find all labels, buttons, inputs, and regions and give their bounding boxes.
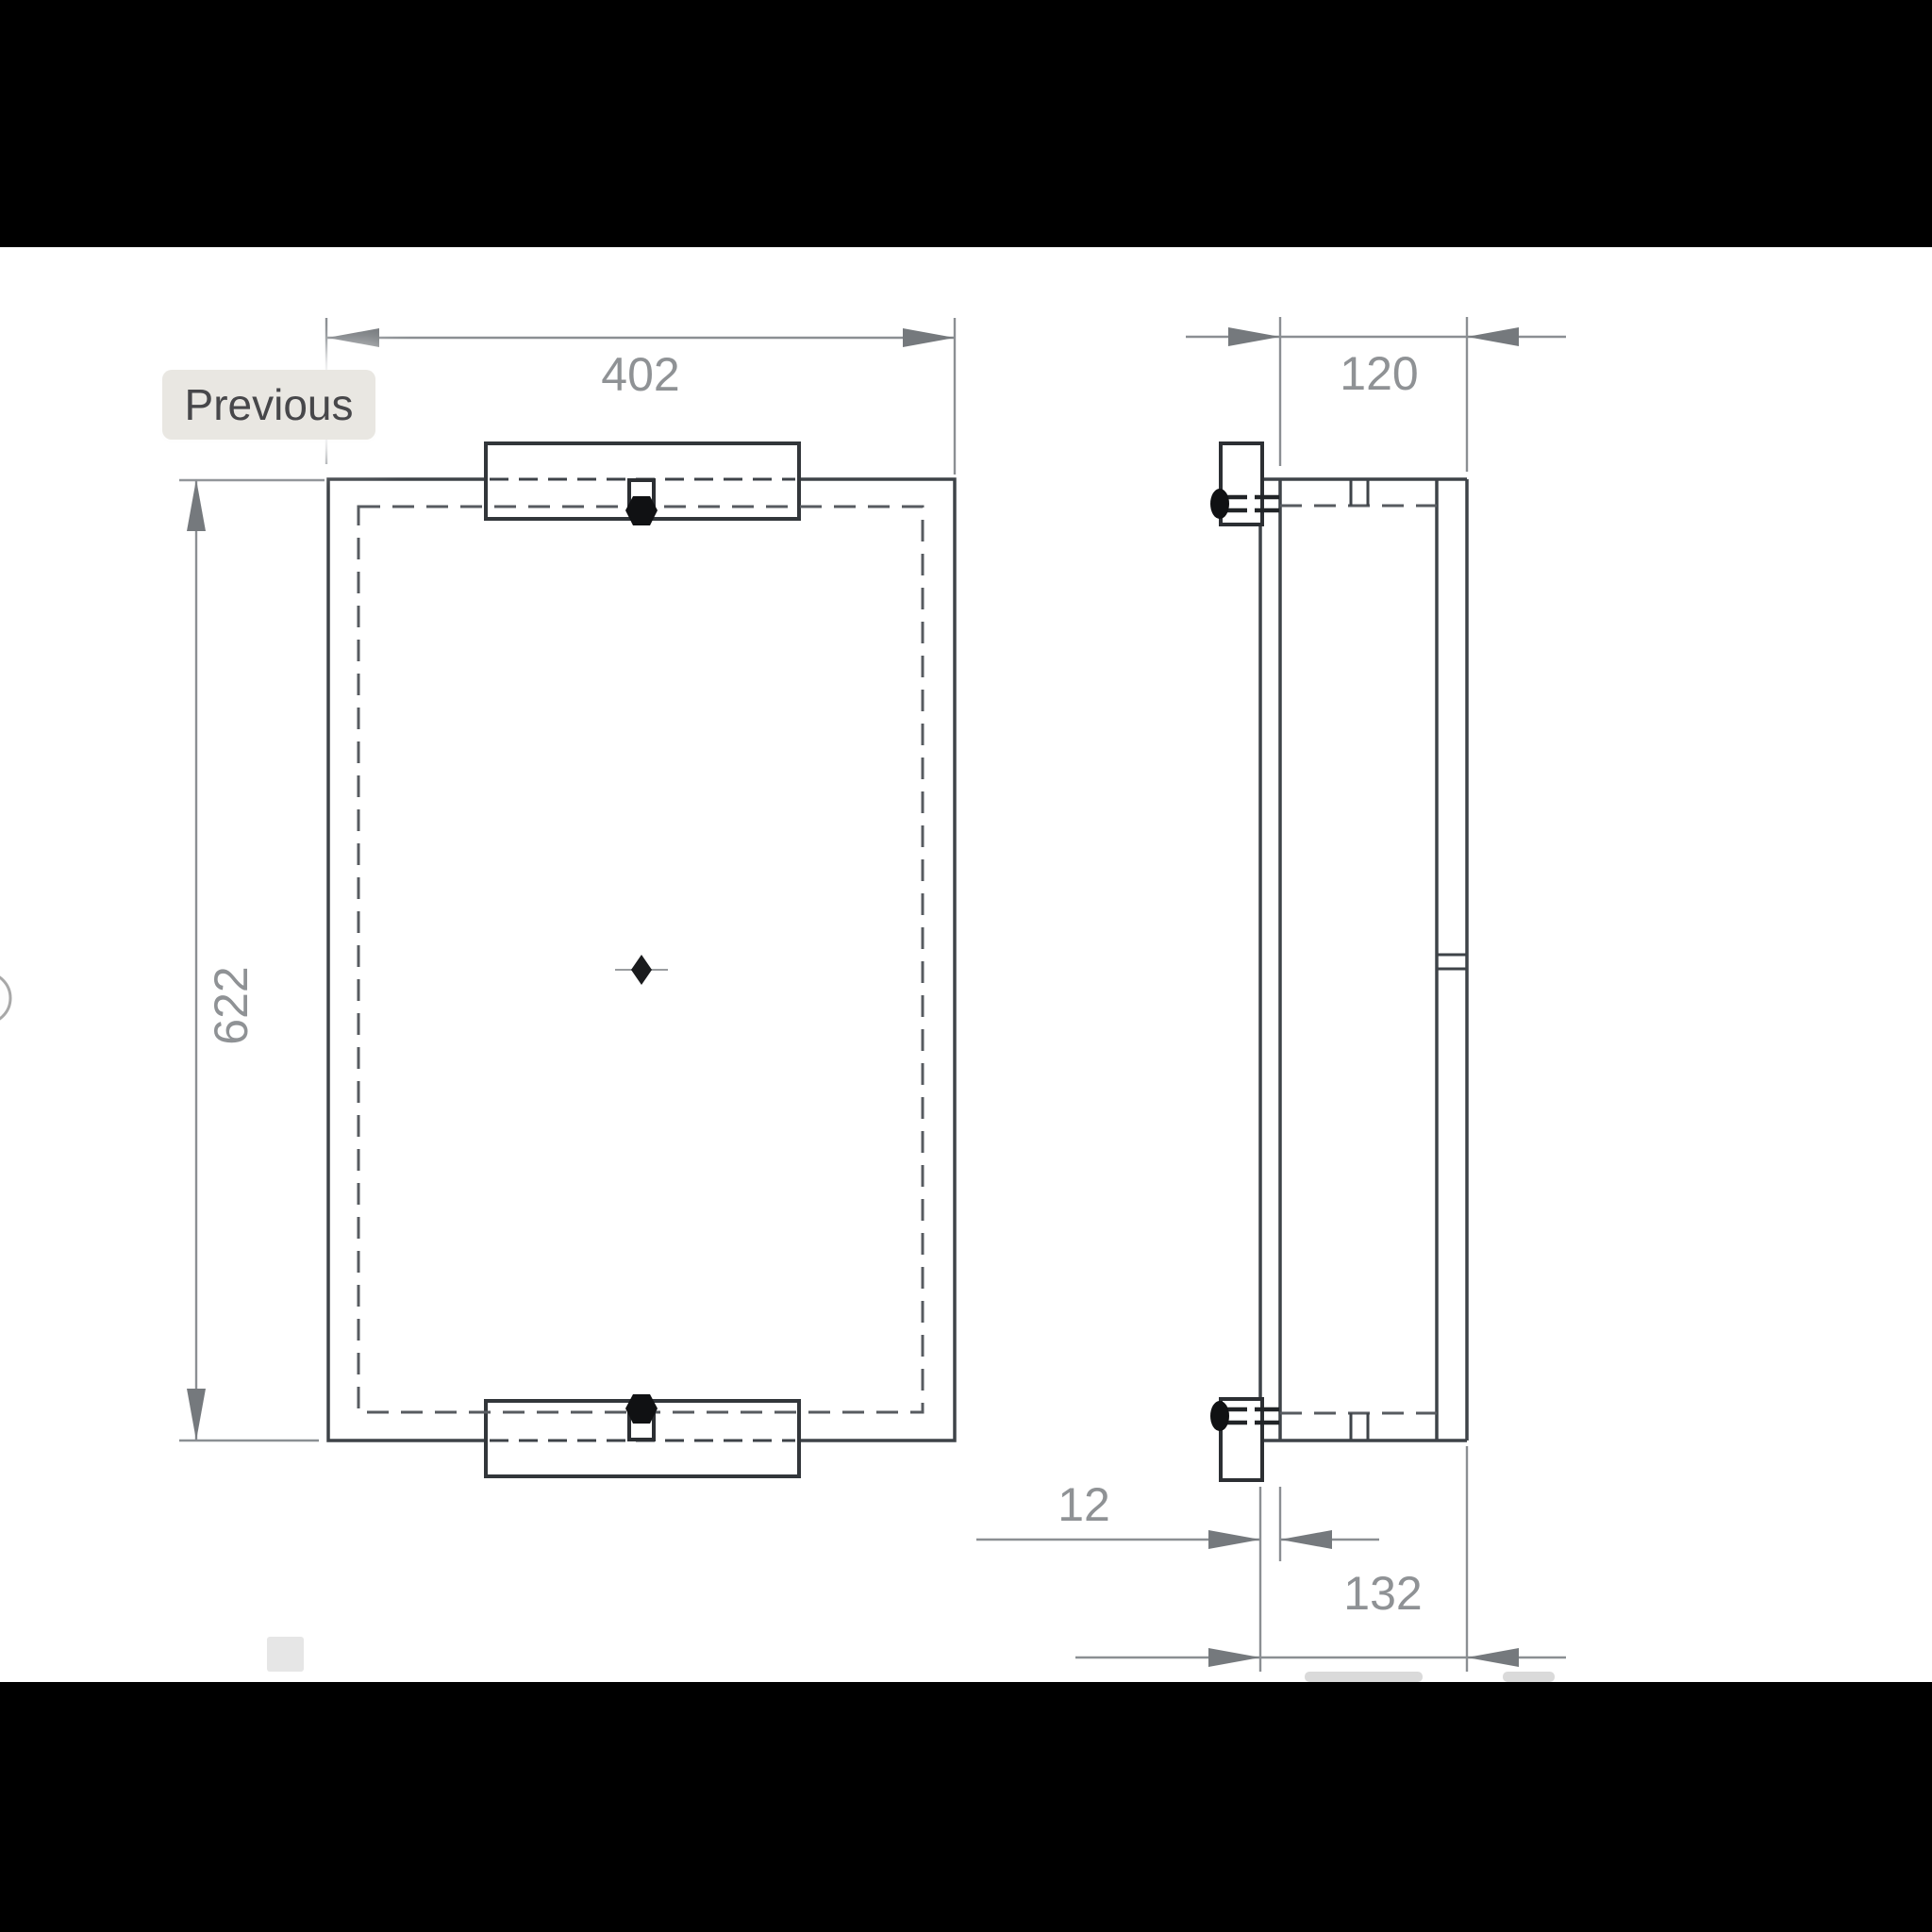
arrowhead-left-icon xyxy=(1467,1648,1519,1667)
dimension-label-622: 622 xyxy=(205,966,258,1044)
drawing-canvas: 402 622 120 xyxy=(0,247,1932,1682)
arrowhead-left-icon xyxy=(327,328,379,347)
dimension-label-132: 132 xyxy=(1343,1567,1422,1620)
dimension-front-height: 622 xyxy=(179,479,325,1441)
dimension-label-402: 402 xyxy=(601,348,679,401)
technical-drawing: 402 622 120 xyxy=(0,0,1932,1932)
previous-nav-circle-edge[interactable] xyxy=(0,973,10,1024)
arrowhead-right-icon xyxy=(903,328,955,347)
side-top-bracket xyxy=(1210,443,1280,525)
letterbox-top-bar xyxy=(0,0,1932,247)
arrowhead-right-icon xyxy=(1208,1648,1260,1667)
center-mark-icon xyxy=(615,955,668,985)
screw-side-icon xyxy=(1210,489,1229,519)
arrowhead-down-icon xyxy=(187,1389,206,1441)
side-bottom-screw-notch xyxy=(1351,1413,1368,1441)
arrowhead-left-icon xyxy=(1280,1530,1332,1549)
cropped-content-sliver xyxy=(1503,1672,1555,1682)
dimension-label-120: 120 xyxy=(1340,347,1418,400)
screw-side-icon xyxy=(1210,1401,1229,1431)
dimension-label-12: 12 xyxy=(1058,1478,1110,1531)
dimension-plate-thickness: 12 xyxy=(976,1478,1379,1672)
cropped-content-sliver xyxy=(1305,1672,1423,1682)
front-bottom-screw xyxy=(625,1394,658,1440)
front-view xyxy=(328,443,955,1476)
arrowhead-right-icon xyxy=(1228,327,1280,346)
front-top-screw xyxy=(625,480,658,525)
arrowhead-left-icon xyxy=(1467,327,1519,346)
letterbox-bottom-bar xyxy=(0,1682,1932,1932)
dimension-total-depth: 132 xyxy=(1075,1446,1566,1672)
side-top-screw-notch xyxy=(1351,479,1368,506)
image-viewer: 402 622 120 xyxy=(0,0,1932,1932)
previous-button[interactable]: Previous xyxy=(162,370,375,440)
arrowhead-right-icon xyxy=(1208,1530,1260,1549)
arrowhead-up-icon xyxy=(187,479,206,531)
thumbnail-placeholder xyxy=(267,1637,304,1672)
side-view xyxy=(1210,443,1467,1480)
